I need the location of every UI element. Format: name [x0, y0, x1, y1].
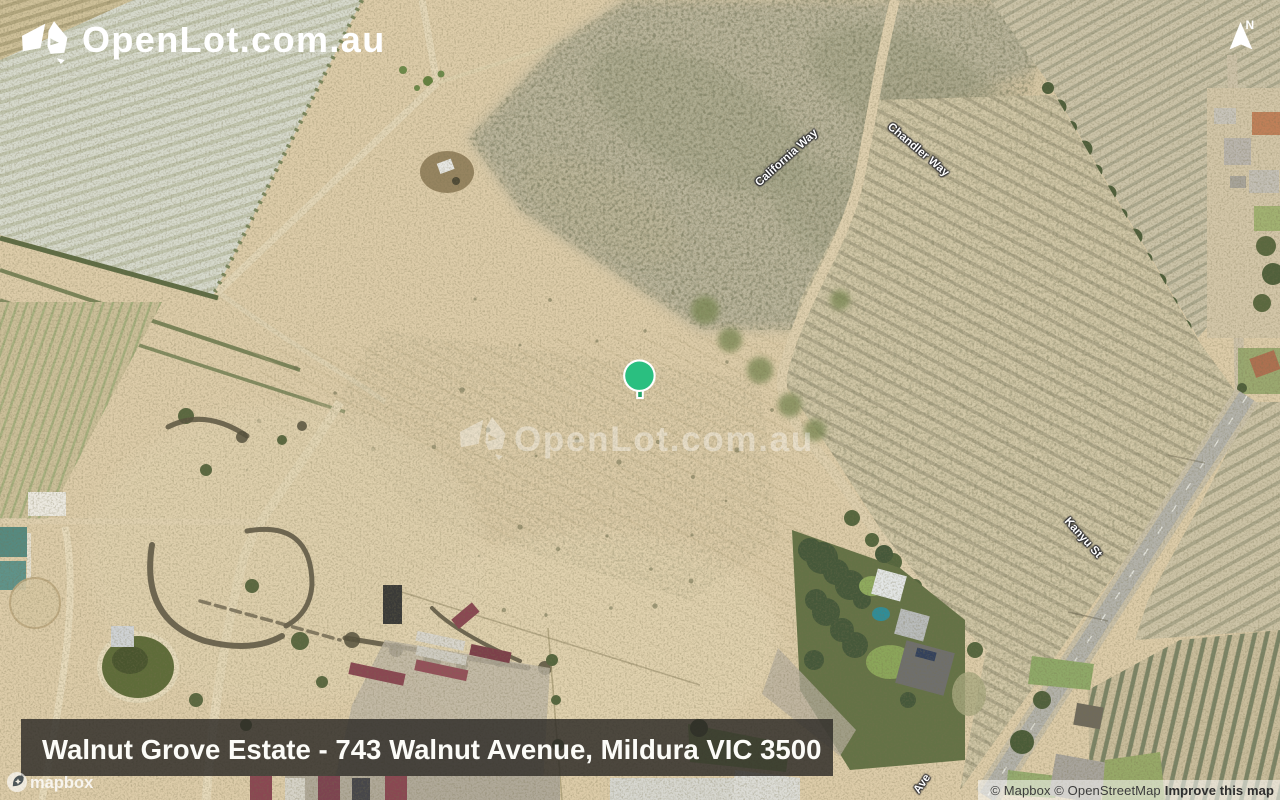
- svg-text:N: N: [1246, 18, 1255, 32]
- svg-text:mapbox: mapbox: [30, 774, 94, 792]
- svg-text:OpenLot.com.au: OpenLot.com.au: [82, 19, 386, 60]
- svg-text:OpenLot.com.au: OpenLot.com.au: [514, 420, 814, 459]
